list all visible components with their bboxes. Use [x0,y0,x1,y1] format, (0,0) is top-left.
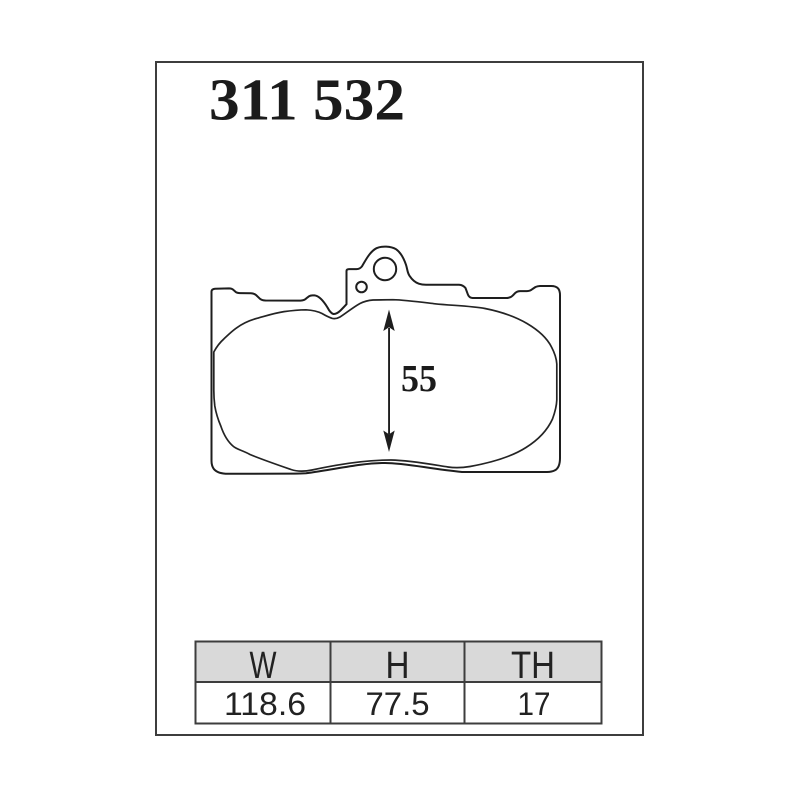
svg-text:77.5: 77.5 [366,686,430,722]
svg-text:W: W [250,645,277,687]
svg-text:H: H [386,645,410,687]
svg-text:TH: TH [511,645,555,687]
svg-text:17: 17 [518,686,551,722]
svg-text:118.6: 118.6 [224,686,306,722]
svg-text:311 532: 311 532 [209,67,405,133]
svg-text:55: 55 [401,358,437,400]
